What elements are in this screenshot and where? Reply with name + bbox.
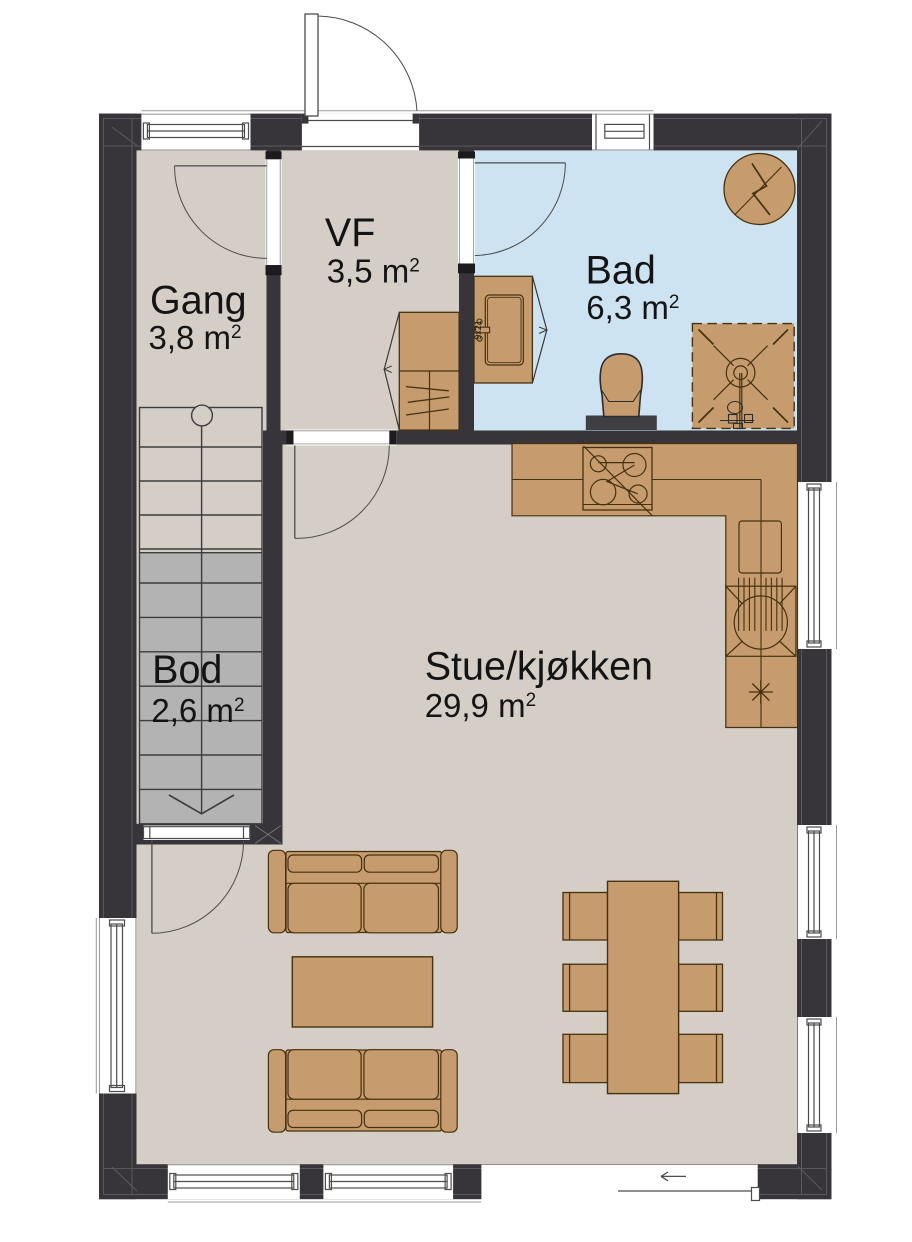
svg-text:Stue/kjøkken: Stue/kjøkken [425,644,653,688]
svg-text:6,3 m2: 6,3 m2 [586,289,679,326]
svg-text:Bod: Bod [152,648,222,692]
svg-text:Gang: Gang [150,279,247,323]
svg-text:Bad: Bad [586,249,656,293]
svg-text:29,9 m2: 29,9 m2 [425,687,536,724]
svg-text:2,6 m2: 2,6 m2 [151,692,244,729]
svg-text:3,8 m2: 3,8 m2 [149,319,242,356]
svg-text:3,5 m2: 3,5 m2 [327,253,420,290]
svg-text:9x21: 9x21 [473,320,483,340]
svg-text:VF: VF [325,211,375,255]
